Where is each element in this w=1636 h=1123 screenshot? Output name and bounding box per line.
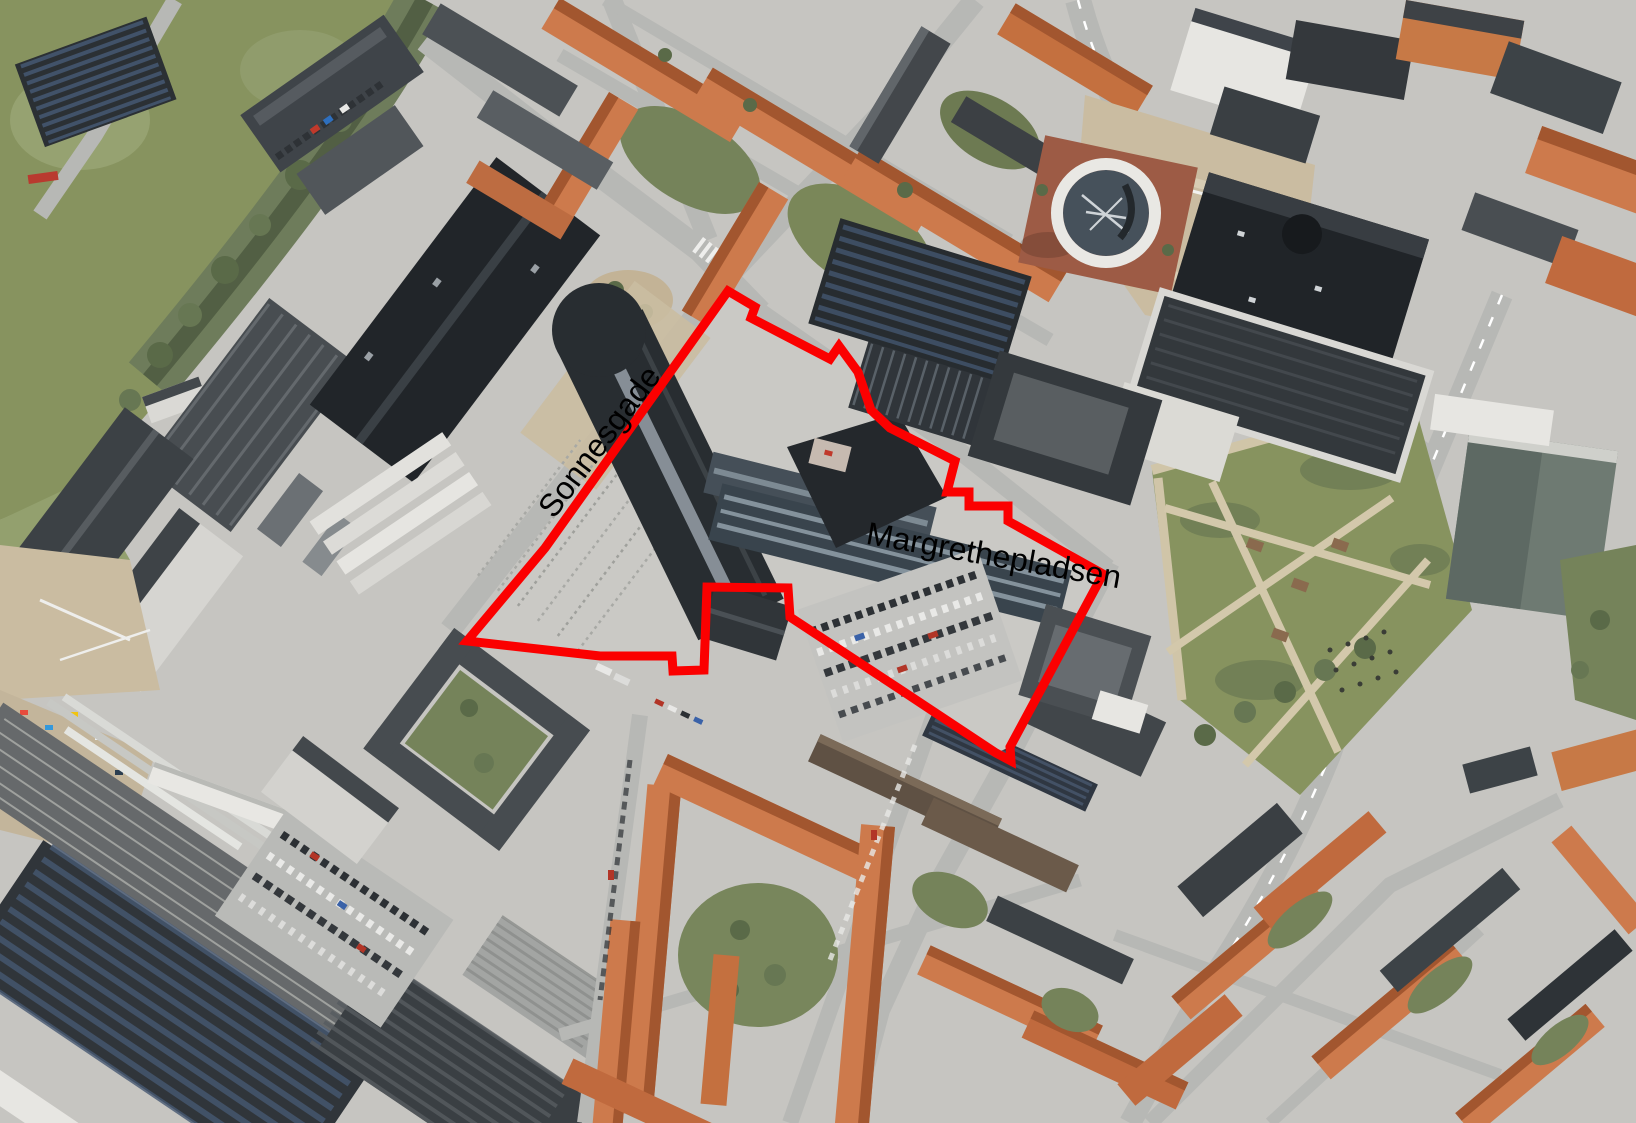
aerial-photo-canvas: Sonnesgade Margrethepladsen	[0, 0, 1636, 1123]
aerial-photo: Sonnesgade Margrethepladsen	[0, 0, 1636, 1123]
